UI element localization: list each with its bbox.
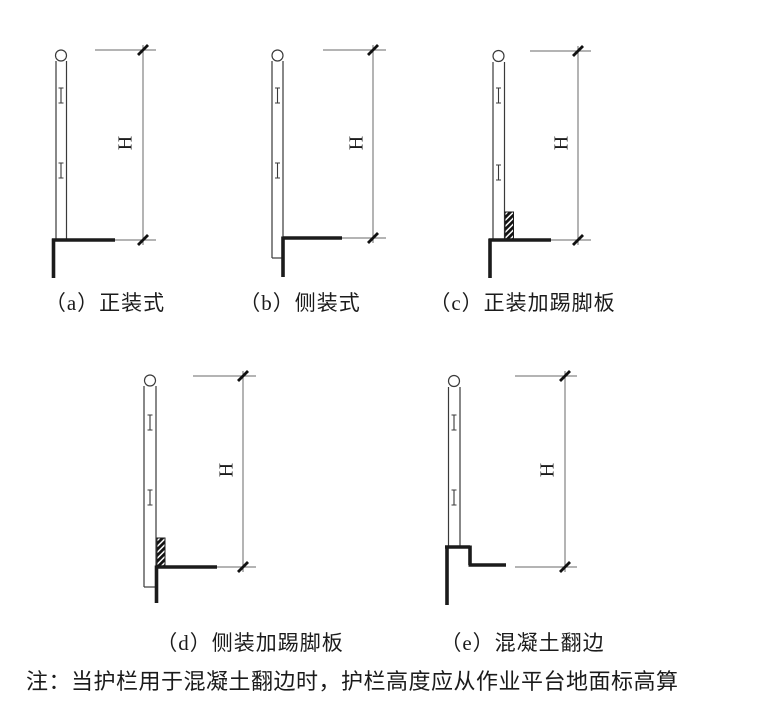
guardrail-post [493, 51, 505, 241]
platform-edge [156, 566, 217, 604]
post-joint-mark [452, 415, 457, 430]
dimension: H [95, 45, 156, 245]
caption-e: （e）混凝土翻边 [420, 627, 625, 657]
dimension-label-h: H [115, 136, 137, 150]
guardrail-post [272, 50, 283, 258]
dimension-label-h: H [537, 463, 559, 477]
figure-a-drawing: H [40, 40, 170, 290]
caption-b: （b）侧装式 [225, 287, 375, 317]
post-top-ball [272, 50, 283, 61]
dimension: H [530, 46, 591, 245]
guardrail-post [144, 375, 157, 587]
post-joint-mark [148, 490, 153, 505]
figure-e-drawing: H [395, 365, 585, 610]
guardrail-post [449, 376, 461, 548]
post-joint-mark [275, 163, 280, 178]
post-joint-mark [452, 490, 457, 505]
post-joint-mark [496, 88, 501, 103]
post-top-ball [493, 51, 504, 62]
platform-edge [52, 239, 115, 279]
post-top-ball [56, 50, 67, 61]
concrete-upturn-curb [445, 546, 506, 606]
figure-d-drawing: H [120, 365, 270, 610]
platform-edge [283, 237, 342, 278]
dimension: H [323, 45, 386, 243]
dimension: H [515, 371, 577, 572]
figure-e: H [395, 365, 585, 610]
post-joint-mark [59, 163, 64, 178]
guardrail-types-figure: H （a）正装式 H [0, 0, 772, 723]
caption-d: （d）侧装加踢脚板 [135, 627, 365, 657]
post-top-ball [449, 376, 460, 387]
post-top-ball [145, 375, 156, 386]
post-joint-mark [496, 165, 501, 180]
figure-note: 注：当护栏用于混凝土翻边时，护栏高度应从作业平台地面标高算 [26, 664, 679, 696]
figure-c: H [455, 40, 605, 290]
caption-a: （a）正装式 [40, 287, 170, 317]
dimension: H [193, 371, 256, 572]
figure-b-drawing: H [255, 40, 400, 290]
guardrail-post [56, 50, 67, 240]
dimension-label-h: H [551, 136, 573, 150]
dimension-label-h: H [216, 463, 238, 477]
caption-c: （c）正装加踢脚板 [405, 287, 640, 317]
figure-a: H [40, 40, 170, 290]
post-joint-mark [59, 88, 64, 103]
toe-board [157, 538, 165, 567]
dimension-label-h: H [346, 136, 368, 150]
figure-b: H [255, 40, 400, 290]
toe-board [505, 212, 514, 240]
post-joint-mark [275, 88, 280, 103]
figure-d: H [120, 365, 270, 610]
post-joint-mark [148, 415, 153, 430]
figure-c-drawing: H [455, 40, 605, 290]
platform-edge [489, 239, 551, 279]
